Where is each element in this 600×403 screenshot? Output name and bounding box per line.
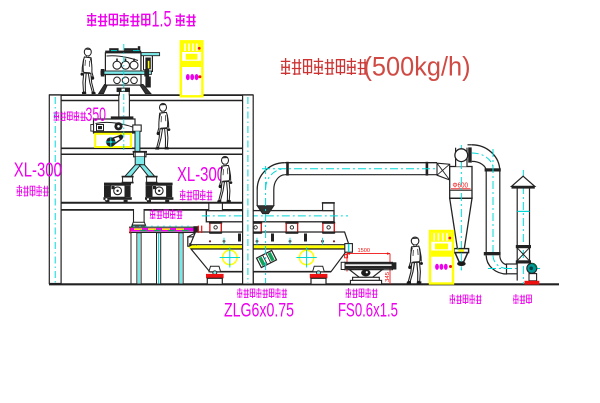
svg-text:XL-300: XL-300 — [14, 159, 62, 181]
svg-text:350: 350 — [86, 105, 107, 126]
svg-text:XL-300: XL-300 — [177, 164, 225, 186]
svg-text:FS0.6x1.5: FS0.6x1.5 — [338, 301, 398, 322]
svg-text:1.5: 1.5 — [152, 7, 172, 32]
svg-text:345: 345 — [385, 272, 391, 282]
svg-text:(500kg/h): (500kg/h) — [364, 52, 471, 82]
svg-text:Φ600: Φ600 — [453, 182, 469, 189]
svg-text:1500: 1500 — [358, 248, 371, 254]
svg-text:ZLG6x0.75: ZLG6x0.75 — [224, 301, 294, 322]
